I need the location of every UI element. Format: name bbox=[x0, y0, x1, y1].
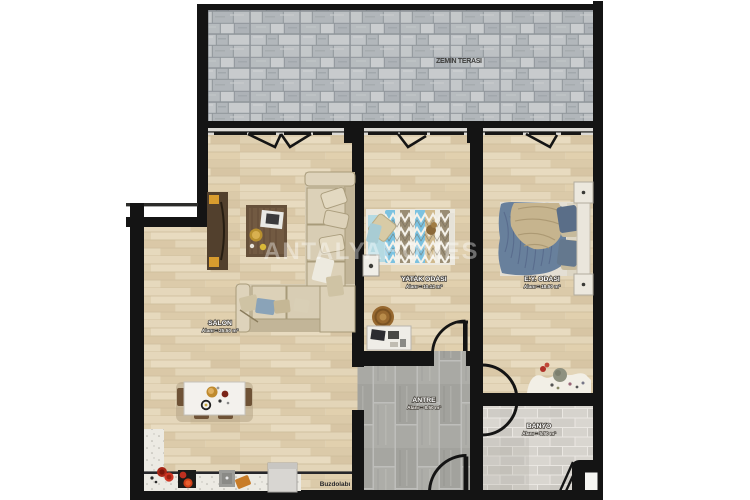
svg-text:ZEMİN TERASI: ZEMİN TERASI bbox=[436, 57, 482, 65]
svg-text:SALON: SALON bbox=[208, 320, 232, 327]
svg-text:Alanı = 18.50 m²: Alanı = 18.50 m² bbox=[524, 284, 561, 290]
svg-text:BANYO: BANYO bbox=[527, 423, 552, 430]
svg-text:YATAK ODASI: YATAK ODASI bbox=[401, 276, 446, 283]
svg-text:E.Y. ODASI: E.Y. ODASI bbox=[524, 276, 560, 283]
svg-text:Alanı = 10.12 m²: Alanı = 10.12 m² bbox=[406, 284, 443, 290]
svg-text:Alanı = 8.50 m²: Alanı = 8.50 m² bbox=[407, 405, 441, 411]
svg-text:Buzdolabı: Buzdolabı bbox=[320, 481, 351, 488]
svg-text:ANTALYAHOMES: ANTALYAHOMES bbox=[264, 238, 479, 265]
svg-text:Alanı = 25.50 m²: Alanı = 25.50 m² bbox=[202, 328, 239, 334]
svg-text:ANTRE: ANTRE bbox=[412, 397, 436, 404]
svg-text:Alanı = 5.50 m²: Alanı = 5.50 m² bbox=[522, 431, 556, 437]
